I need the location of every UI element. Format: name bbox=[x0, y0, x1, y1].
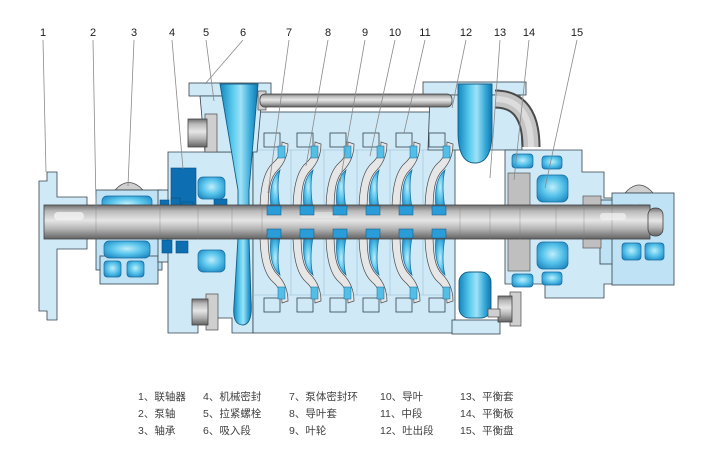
callout-9: 9 bbox=[362, 27, 368, 39]
callout-10: 10 bbox=[389, 27, 401, 39]
legend-item: 1、联轴器 bbox=[138, 389, 186, 406]
legend-item: 3、轴承 bbox=[138, 423, 186, 440]
legend-column: 1、联轴器 2、泵轴 3、轴承 bbox=[138, 389, 186, 440]
legend-item: 13、平衡套 bbox=[460, 389, 514, 406]
legend-item: 8、导叶套 bbox=[289, 406, 358, 423]
callout-12: 12 bbox=[460, 27, 472, 39]
callout-14: 14 bbox=[523, 27, 535, 39]
parts-legend: 1、联轴器 2、泵轴 3、轴承 4、机械密封 5、拉紧螺栓 6、吸入段 7、泵体… bbox=[0, 389, 717, 449]
callout-3: 3 bbox=[131, 27, 137, 39]
callout-7: 7 bbox=[286, 27, 292, 39]
callout-11: 11 bbox=[419, 27, 430, 39]
pump-diagram-page: 1 2 3 4 5 6 7 8 9 10 11 12 13 14 15 1、联轴… bbox=[0, 0, 717, 469]
legend-column: 4、机械密封 5、拉紧螺栓 6、吸入段 bbox=[203, 389, 261, 440]
callout-numbers: 1 2 3 4 5 6 7 8 9 10 11 12 13 14 15 bbox=[40, 27, 583, 39]
callout-2: 2 bbox=[90, 27, 96, 39]
callout-8: 8 bbox=[325, 27, 331, 39]
legend-item: 15、平衡盘 bbox=[460, 423, 514, 440]
callout-1: 1 bbox=[40, 27, 46, 39]
pump-cross-section-diagram: 1 2 3 4 5 6 7 8 9 10 11 12 13 14 15 bbox=[0, 0, 717, 380]
pump-shaft bbox=[44, 205, 663, 239]
legend-item: 4、机械密封 bbox=[203, 389, 261, 406]
legend-item: 2、泵轴 bbox=[138, 406, 186, 423]
callout-5: 5 bbox=[203, 27, 209, 39]
legend-item: 5、拉紧螺栓 bbox=[203, 406, 261, 423]
callout-13: 13 bbox=[494, 27, 506, 39]
coupling bbox=[39, 172, 87, 320]
legend-column: 13、平衡套 14、平衡板 15、平衡盘 bbox=[460, 389, 514, 440]
legend-column: 10、导叶 11、中段 12、吐出段 bbox=[380, 389, 434, 440]
legend-item: 12、吐出段 bbox=[380, 423, 434, 440]
callout-6: 6 bbox=[240, 27, 246, 39]
legend-item: 9、叶轮 bbox=[289, 423, 358, 440]
legend-item: 6、吸入段 bbox=[203, 423, 261, 440]
legend-item: 14、平衡板 bbox=[460, 406, 514, 423]
callout-4: 4 bbox=[169, 27, 175, 39]
legend-item: 11、中段 bbox=[380, 406, 434, 423]
discharge-channel bbox=[458, 84, 492, 318]
legend-item: 7、泵体密封环 bbox=[289, 389, 358, 406]
tie-bolt bbox=[258, 91, 452, 110]
side-port-boss bbox=[192, 294, 218, 330]
legend-column: 7、泵体密封环 8、导叶套 9、叶轮 bbox=[289, 389, 358, 440]
side-port-boss bbox=[188, 114, 217, 152]
callout-15: 15 bbox=[571, 27, 583, 39]
legend-item: 10、导叶 bbox=[380, 389, 434, 406]
